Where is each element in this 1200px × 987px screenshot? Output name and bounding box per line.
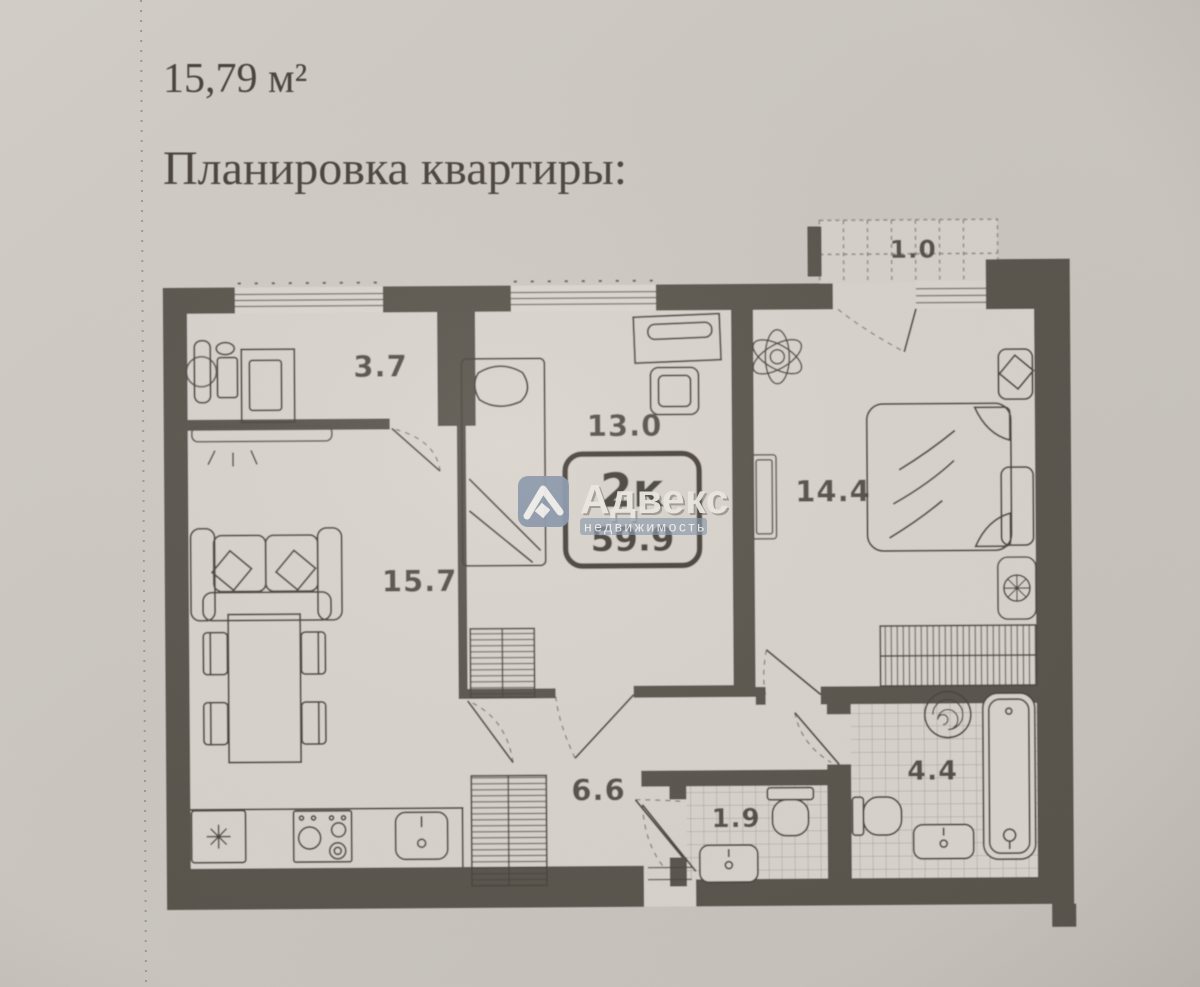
watermark-tagline: недвижимость [584, 519, 707, 535]
room-area-label-bedroom-master: 14.4 [795, 474, 871, 509]
ventilation-unit [998, 557, 1036, 619]
bathtub [983, 693, 1036, 859]
watermark-logo [518, 476, 569, 527]
room-area-label-wc: 1.9 [711, 804, 760, 834]
room-area-label-loggia: 3.7 [353, 349, 408, 383]
watermark: Адвекс Адвекс недвижимость [518, 476, 731, 535]
room-area-label-bathroom: 4.4 [907, 756, 958, 787]
room-area-label-bedroom-small: 13.0 [587, 409, 663, 444]
floor-plan: 3.7 13.0 14.4 15.7 6.6 1.9 4.4 1.0 2к 59… [162, 219, 1076, 933]
room-area-label-balcony: 1.0 [889, 235, 936, 264]
toilet [767, 788, 813, 836]
toilet [852, 797, 901, 835]
room-area-label-hallway: 6.6 [571, 773, 626, 807]
wc-sink [700, 845, 758, 882]
watermark-brand: Адвекс [580, 476, 729, 522]
wardrobe-hallway [471, 775, 547, 886]
area-note: 15,79 м² [163, 56, 307, 102]
wardrobe-bedroom-small [470, 628, 534, 697]
room-area-label-living: 15.7 [382, 564, 458, 599]
floor-plan-canvas: 15,79 м² Планировка квартиры: [0, 0, 1200, 987]
wardrobe-bedroom-master [880, 625, 1036, 686]
bathroom-sink [914, 824, 974, 858]
page-title: Планировка квартиры: [163, 142, 627, 195]
scanned-floor-plan-photo: 15,79 м² Планировка квартиры: [0, 0, 1200, 987]
